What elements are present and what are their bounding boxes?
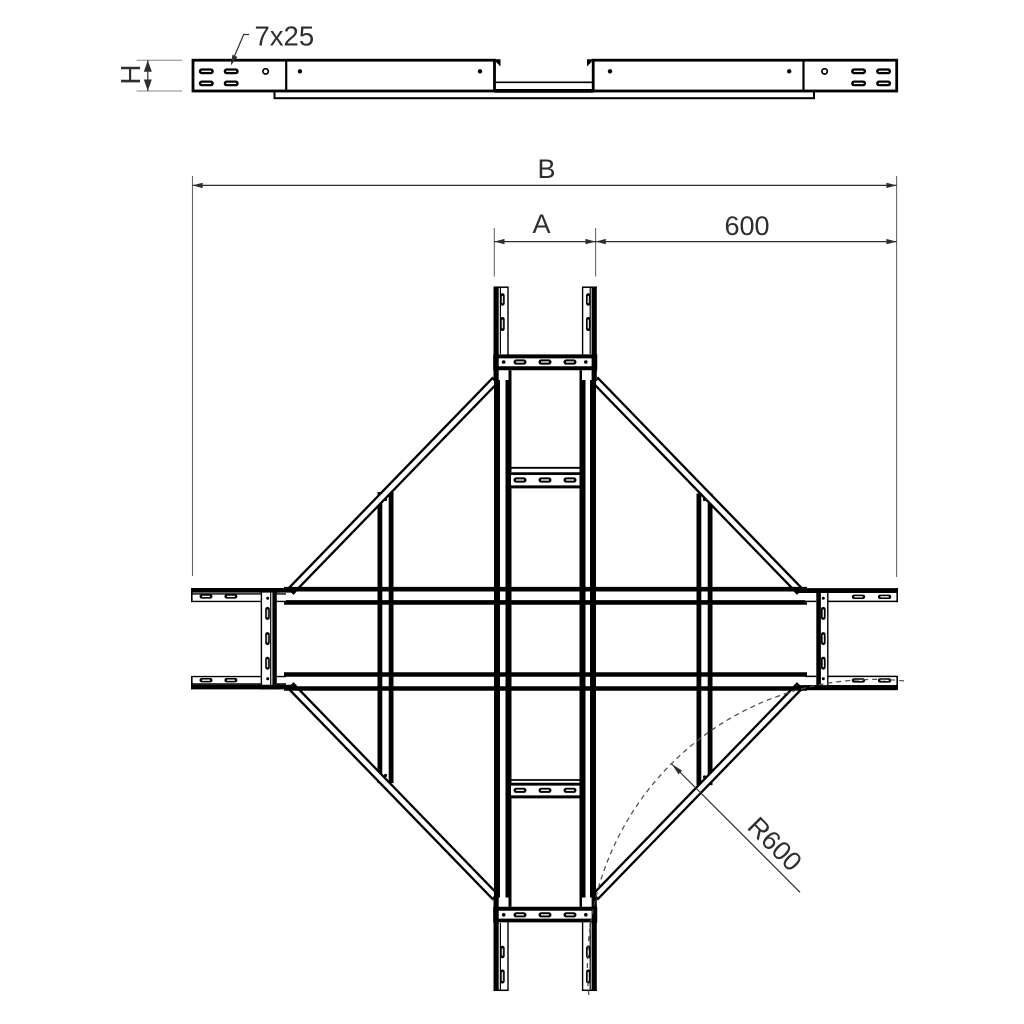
svg-text:B: B <box>537 154 555 184</box>
svg-text:600: 600 <box>724 211 769 241</box>
svg-text:7x25: 7x25 <box>255 21 315 52</box>
svg-text:H: H <box>115 64 146 84</box>
svg-text:A: A <box>532 209 550 239</box>
